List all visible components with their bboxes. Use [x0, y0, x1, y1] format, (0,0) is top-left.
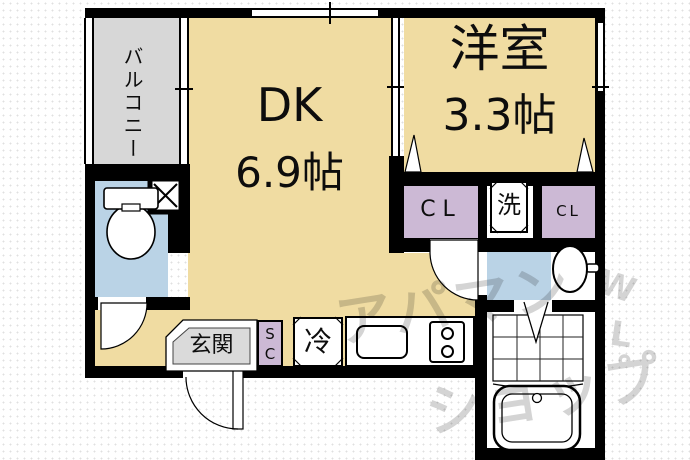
wall-closet-bottom — [389, 238, 605, 252]
stove-burner-icon — [441, 327, 454, 340]
refrigerator-label: 冷 — [293, 328, 343, 356]
closet-left-label: CL — [404, 199, 478, 221]
entrance-label: 玄関 — [173, 335, 250, 357]
window-top — [252, 8, 378, 18]
washroom-doorway-threshold — [475, 252, 487, 295]
dk-name-label: DK — [188, 82, 391, 128]
dk-size-label: 6.9帖 — [188, 152, 391, 194]
shoe-closet-line1: S — [257, 325, 283, 345]
wall-bathroom-bottom — [475, 448, 605, 460]
stove-burner-icon — [441, 345, 454, 358]
wall-bottom — [85, 366, 487, 378]
wall-left — [85, 164, 95, 378]
balcony-label: バルコニー — [122, 38, 142, 168]
wall-toilet-right — [168, 181, 190, 253]
western-room-name-label: 洋室 — [404, 24, 595, 74]
entrance-door-arc — [186, 377, 238, 429]
window-western-right — [596, 23, 605, 91]
shoe-closet-line2: C — [257, 345, 283, 365]
watermark-mark-l: L — [608, 317, 634, 354]
shoe-closet-label: S C — [257, 325, 283, 364]
window-tick — [329, 2, 331, 24]
watermark-mark-dot: ゜ — [618, 354, 664, 400]
bathroom-doorway — [514, 300, 552, 312]
vanity-counter — [551, 252, 595, 300]
floorplan: バルコニー DK 6.9帖 洋室 3.3帖 CL 洗 CL S C 冷 玄関 ア… — [0, 0, 690, 460]
bathroom-floor — [487, 312, 595, 448]
closet-right-label: CL — [542, 204, 595, 219]
kitchen-sink — [356, 325, 408, 359]
balcony-railing-window — [84, 18, 94, 164]
washroom-doorway — [430, 239, 478, 252]
entrance-doorway — [183, 366, 240, 378]
western-room-size-label: 3.3帖 — [404, 94, 595, 138]
laundry-label: 洗 — [490, 193, 528, 217]
toilet-room-floor — [93, 181, 168, 297]
toilet-doorway — [98, 297, 146, 310]
window-tick — [592, 86, 609, 88]
